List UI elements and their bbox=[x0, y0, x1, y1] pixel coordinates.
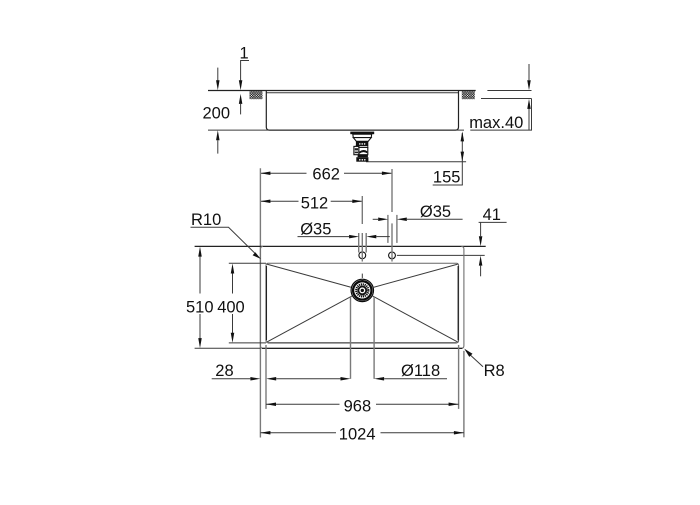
svg-text:400: 400 bbox=[217, 299, 245, 317]
svg-text:28: 28 bbox=[215, 362, 233, 380]
svg-text:R8: R8 bbox=[484, 362, 505, 380]
svg-text:max.40: max.40 bbox=[469, 114, 523, 132]
svg-text:662: 662 bbox=[312, 165, 340, 183]
svg-text:510: 510 bbox=[186, 299, 214, 317]
svg-text:1024: 1024 bbox=[339, 426, 376, 444]
svg-text:Ø118: Ø118 bbox=[401, 362, 440, 380]
svg-text:155: 155 bbox=[433, 168, 461, 186]
svg-text:1: 1 bbox=[240, 45, 249, 63]
svg-text:41: 41 bbox=[483, 206, 501, 224]
svg-text:R10: R10 bbox=[191, 211, 221, 229]
svg-text:200: 200 bbox=[203, 105, 231, 123]
svg-text:512: 512 bbox=[301, 194, 329, 212]
svg-text:968: 968 bbox=[344, 398, 372, 416]
svg-text:Ø35: Ø35 bbox=[300, 220, 331, 238]
svg-text:Ø35: Ø35 bbox=[420, 203, 451, 221]
